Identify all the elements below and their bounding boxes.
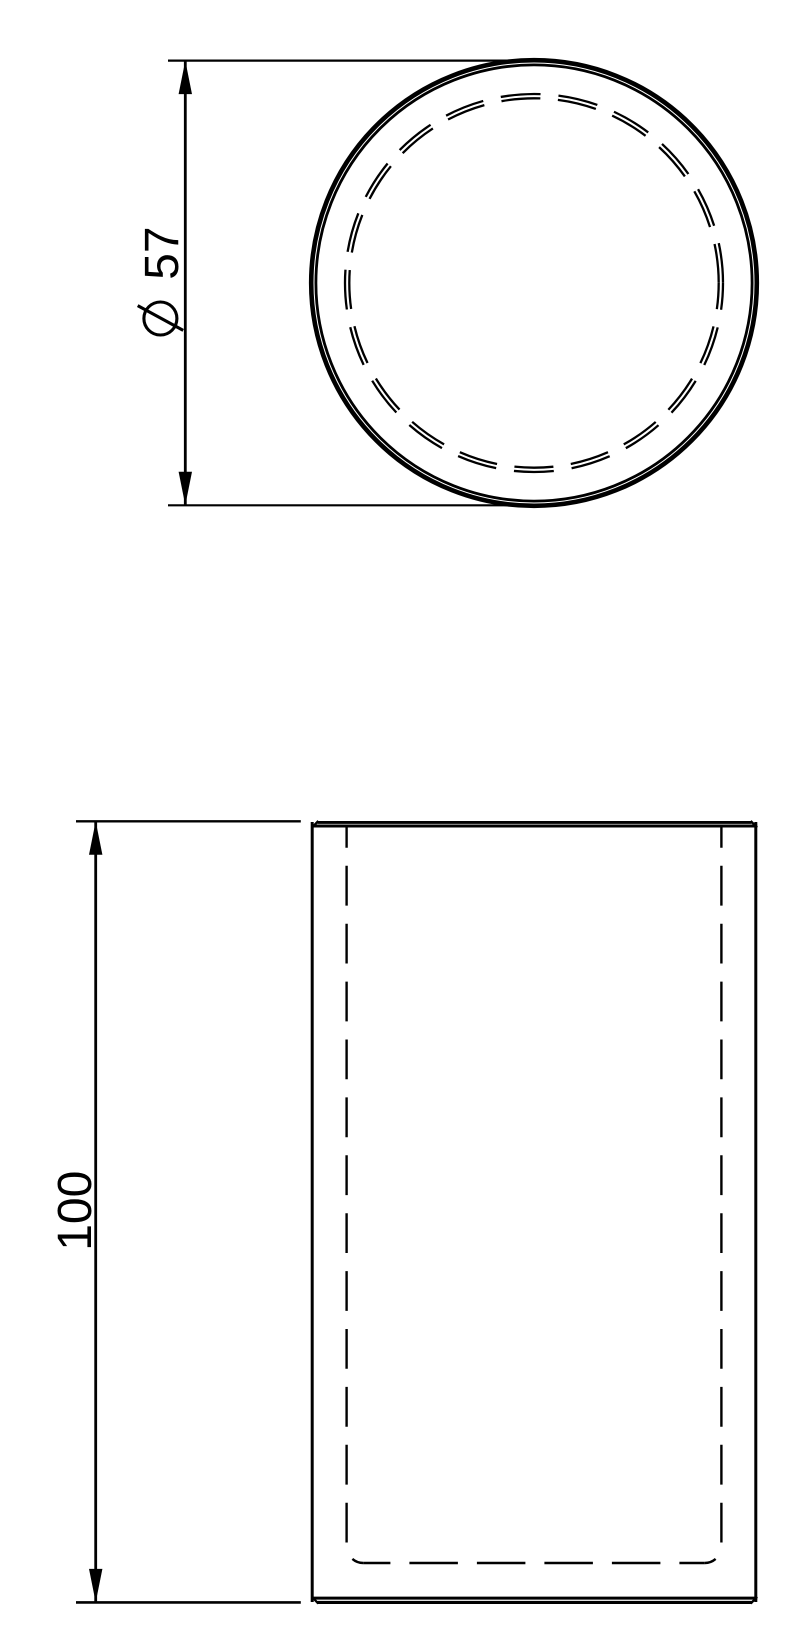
svg-text:100: 100 [49, 1171, 102, 1251]
svg-text:57: 57 [136, 226, 189, 279]
